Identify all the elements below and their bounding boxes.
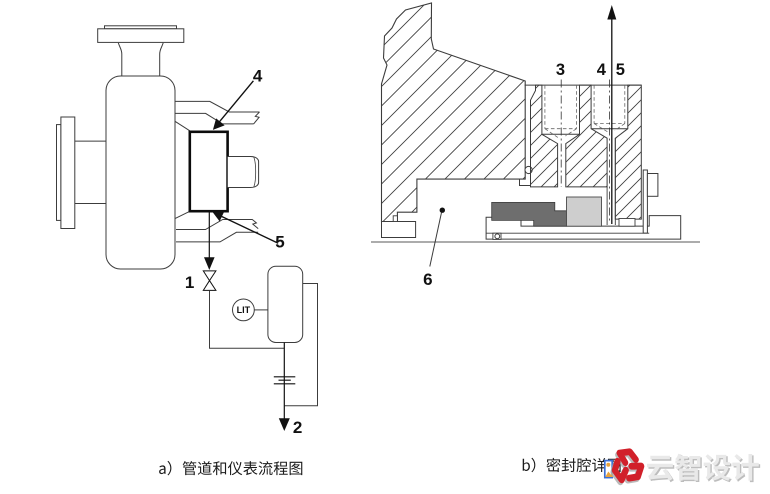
svg-text:4: 4 xyxy=(597,61,607,79)
svg-text:6: 6 xyxy=(423,270,432,289)
svg-text:LIT: LIT xyxy=(237,305,251,315)
svg-text:5: 5 xyxy=(275,233,284,252)
svg-text:3: 3 xyxy=(556,61,565,79)
svg-text:5: 5 xyxy=(616,61,625,79)
svg-text:4: 4 xyxy=(253,67,263,86)
svg-text:2: 2 xyxy=(293,418,302,437)
svg-text:1: 1 xyxy=(185,273,194,292)
